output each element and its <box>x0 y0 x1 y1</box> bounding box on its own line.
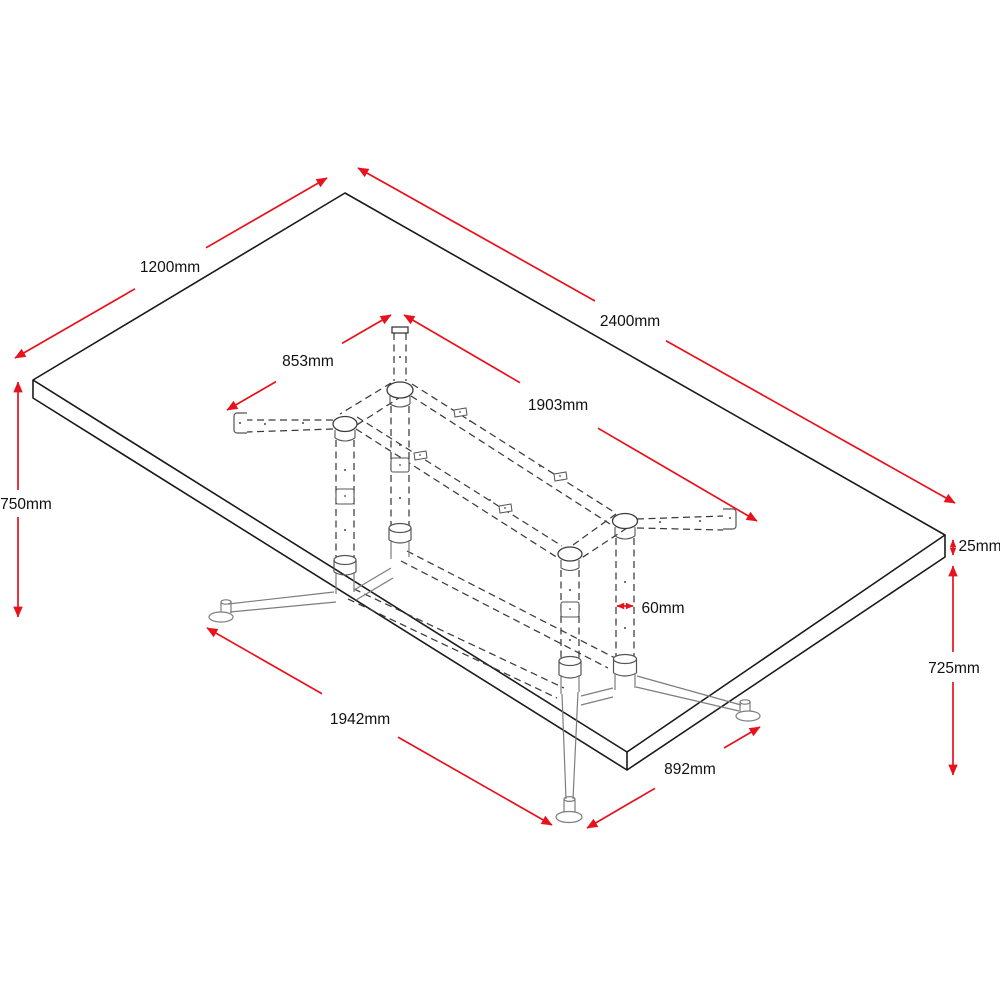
foot-b-front <box>556 812 582 823</box>
dim-label-tabletop-width: 1200mm <box>140 259 200 276</box>
foot-b-right-stem-top <box>740 700 750 704</box>
foot-a-left-stem <box>221 601 231 613</box>
dim-label-overall-height: 750mm <box>0 496 52 513</box>
dim-label-tabletop-length: 2400mm <box>600 313 660 330</box>
dim-label-column-diameter: 60mm <box>641 600 684 617</box>
foot-b-right <box>736 711 760 721</box>
dim-label-clearance-height: 725mm <box>928 660 980 677</box>
tabletop-slab <box>33 193 945 770</box>
dim-label-base-length: 1942mm <box>330 711 390 728</box>
tabletop-top-face <box>33 193 945 752</box>
cap-b1 <box>613 514 638 529</box>
cap-a2 <box>333 417 357 432</box>
technical-drawing-canvas: 1200mm 2400mm 853mm 1903mm 750mm 25mm 72… <box>0 0 1000 1000</box>
cap-b2 <box>558 547 582 561</box>
technical-drawing-page: 1200mm 2400mm 853mm 1903mm 750mm 25mm 72… <box>0 0 1000 1000</box>
cap-a1 <box>387 382 413 398</box>
foot-a-left <box>209 612 233 622</box>
dim-label-top-thickness: 25mm <box>958 538 1000 555</box>
foot-a-left-stem-top <box>221 600 231 604</box>
base-a-left-arm <box>228 592 336 612</box>
pad-right <box>723 509 736 529</box>
dim-label-frame-width: 853mm <box>282 353 334 370</box>
frame-corner-bracket <box>392 327 408 333</box>
dim-label-frame-length: 1903mm <box>528 397 588 414</box>
dim-label-base-width: 892mm <box>664 761 716 778</box>
